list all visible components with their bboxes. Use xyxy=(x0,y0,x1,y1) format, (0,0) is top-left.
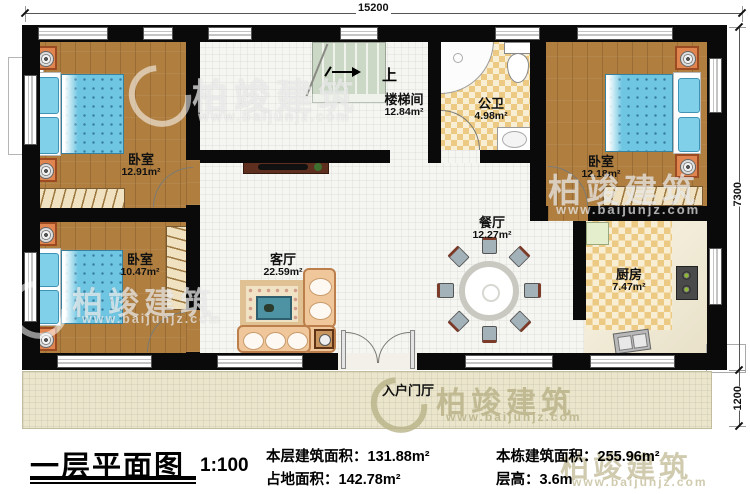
dining-chair xyxy=(482,326,497,343)
window xyxy=(38,27,108,40)
sink-bowl xyxy=(632,333,648,349)
stat-label: 占地面积： xyxy=(266,472,339,488)
room-label-kitchen: 厨房 7.47m² xyxy=(612,268,645,294)
room-area: 4.98m² xyxy=(474,111,507,123)
sofa-cushion xyxy=(309,278,332,296)
window xyxy=(57,355,152,368)
stat-value: 131.88m² xyxy=(368,449,430,465)
sofa-main xyxy=(237,325,311,353)
room-name: 餐厅 xyxy=(479,215,505,230)
dim-label-right: 7300 xyxy=(730,182,746,206)
pillow xyxy=(37,77,59,114)
bathroom-sink xyxy=(497,127,531,151)
stat-value: 142.78m² xyxy=(339,472,401,488)
room-label-bedroom2: 卧室 10.47m² xyxy=(120,253,159,279)
pillow xyxy=(37,117,59,154)
lamp-icon xyxy=(38,51,54,67)
room-area: 22.59m² xyxy=(263,267,302,279)
window xyxy=(495,27,540,40)
watermark-url: www.baijunjz.com xyxy=(572,475,708,489)
window xyxy=(709,58,722,113)
window xyxy=(465,355,553,368)
fridge xyxy=(586,222,609,245)
watermark-url: www.baijunjz.com xyxy=(198,108,351,124)
bed xyxy=(605,74,673,152)
stat-value: 255.96m² xyxy=(598,449,660,465)
room-area: 12.27m² xyxy=(472,230,511,242)
room-label-living: 客厅 22.59m² xyxy=(263,253,302,279)
stat-building-area: 本栋建筑面积：255.96m² xyxy=(496,445,660,466)
stat-floor-area: 本层建筑面积：131.88m² xyxy=(266,445,430,466)
stove xyxy=(676,266,698,300)
room-label-dining: 餐厅 12.27m² xyxy=(472,216,511,242)
sofa-chaise xyxy=(303,268,336,328)
pillow xyxy=(678,78,700,113)
plan-scale: 1:100 xyxy=(200,455,249,477)
lamp-icon xyxy=(38,227,54,243)
dining-table xyxy=(459,261,519,321)
room-area: 12.91m² xyxy=(121,167,160,179)
pillow xyxy=(678,117,700,152)
side-table xyxy=(314,329,334,349)
wall-bathroom-east xyxy=(530,25,546,221)
bed xyxy=(61,74,124,154)
door-opening-bathroom xyxy=(441,150,480,163)
lamp-icon xyxy=(38,163,54,179)
floor-plan-canvas: 卧室 12.91m² 卧室 10.47m² 楼梯间 12.84m² 公卫 4.9… xyxy=(0,0,750,494)
stat-land-area: 占地面积：142.78m² xyxy=(266,468,401,489)
room-area: 12.84m² xyxy=(384,107,423,119)
coffee-table xyxy=(256,296,292,320)
sofa-cushion xyxy=(309,302,332,320)
sink-bowl xyxy=(617,335,633,351)
title-underline xyxy=(30,482,196,484)
tv-icon xyxy=(258,164,308,170)
dining-chair xyxy=(437,283,454,298)
sofa-cushion xyxy=(243,332,264,350)
watermark-url: www.baijunjz.com xyxy=(446,410,582,424)
window xyxy=(217,355,303,368)
window xyxy=(590,355,675,368)
window xyxy=(577,27,673,40)
room-label-stairwell: 楼梯间 12.84m² xyxy=(384,93,423,119)
window xyxy=(709,248,722,305)
wardrobe xyxy=(33,188,125,210)
entrance-door-leaf xyxy=(410,330,415,369)
sink-basin xyxy=(502,131,527,148)
burner-icon xyxy=(682,285,691,294)
plant-icon xyxy=(314,163,322,171)
stat-label: 层高： xyxy=(496,472,540,488)
stat-floor-height: 层高：3.6m xyxy=(496,468,573,489)
room-name: 楼梯间 xyxy=(384,92,423,107)
lamp-icon xyxy=(319,334,331,346)
room-name: 客厅 xyxy=(270,252,296,267)
nightstand xyxy=(675,46,699,70)
entrance-porch xyxy=(22,371,712,429)
room-name: 公卫 xyxy=(478,96,504,111)
room-name: 卧室 xyxy=(128,152,154,167)
bed-sheet-fold xyxy=(62,75,78,153)
room-label-bathroom: 公卫 4.98m² xyxy=(474,97,507,123)
room-name: 卧室 xyxy=(127,252,153,267)
stat-value: 3.6m xyxy=(540,472,573,488)
bed-sheet-fold xyxy=(606,75,622,151)
burner-icon xyxy=(682,271,691,280)
table-center xyxy=(482,284,500,302)
watermark-url: www.baijunjz.com xyxy=(556,202,700,217)
window xyxy=(208,27,252,40)
stat-label: 本栋建筑面积： xyxy=(496,449,598,465)
wall-kitchen-west xyxy=(573,221,586,320)
dim-label-porch: 1200 xyxy=(730,386,746,410)
title-underline xyxy=(30,476,196,480)
window xyxy=(340,27,378,40)
stat-label: 本层建筑面积： xyxy=(266,449,368,465)
dining-chair xyxy=(524,283,541,298)
wall-bathroom-west xyxy=(428,25,441,163)
window xyxy=(24,75,37,145)
watermark-url: www.baijunjz.com xyxy=(82,312,222,326)
lamp-icon xyxy=(680,51,696,67)
table-decor xyxy=(264,304,274,312)
wall-stairwell-south xyxy=(198,150,390,163)
wall-between-bedrooms xyxy=(22,208,200,222)
room-area: 7.47m² xyxy=(612,282,645,294)
drain-icon xyxy=(453,53,463,63)
stairs-up-label: 上 xyxy=(382,64,397,85)
dim-label-top: 15200 xyxy=(356,2,391,14)
room-name: 厨房 xyxy=(616,267,642,282)
sofa-cushion xyxy=(287,332,308,350)
sofa-cushion xyxy=(265,332,286,350)
window xyxy=(143,27,173,40)
room-label-bedroom1: 卧室 12.91m² xyxy=(121,153,160,179)
bed-headboard xyxy=(673,72,701,154)
